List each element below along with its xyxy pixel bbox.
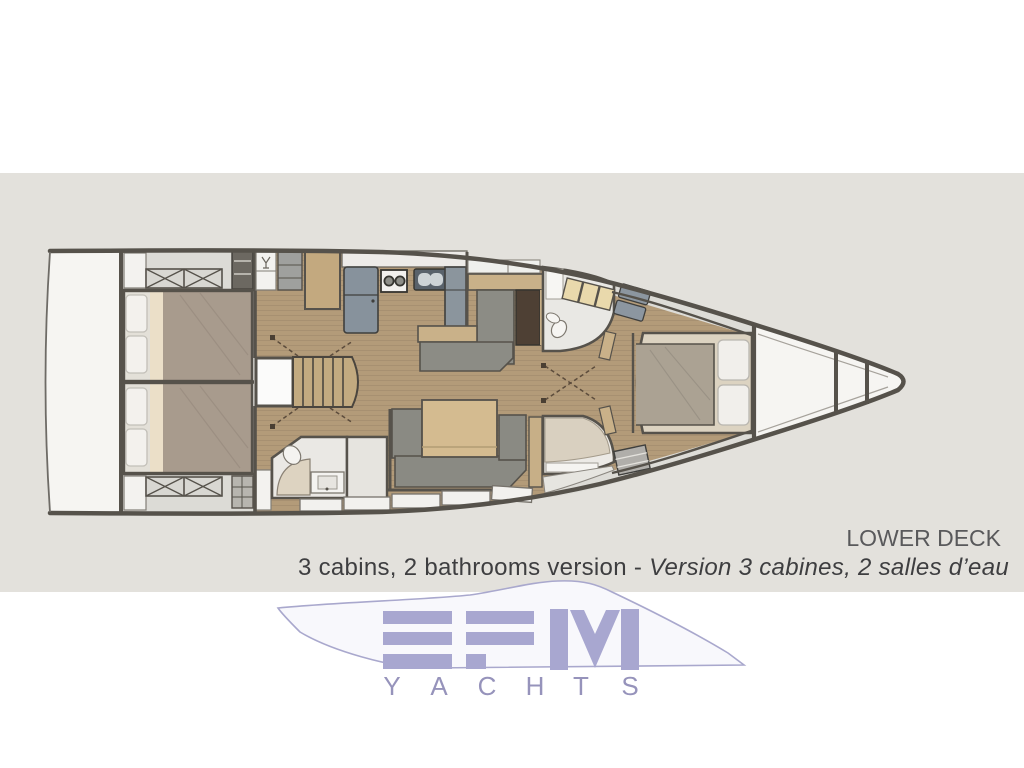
svg-text:A: A [430, 671, 448, 701]
svg-text:C: C [478, 671, 497, 701]
svg-text:T: T [573, 671, 589, 701]
svg-text:H: H [526, 671, 545, 701]
svg-text:Y: Y [383, 671, 400, 701]
svg-text:S: S [621, 671, 638, 701]
